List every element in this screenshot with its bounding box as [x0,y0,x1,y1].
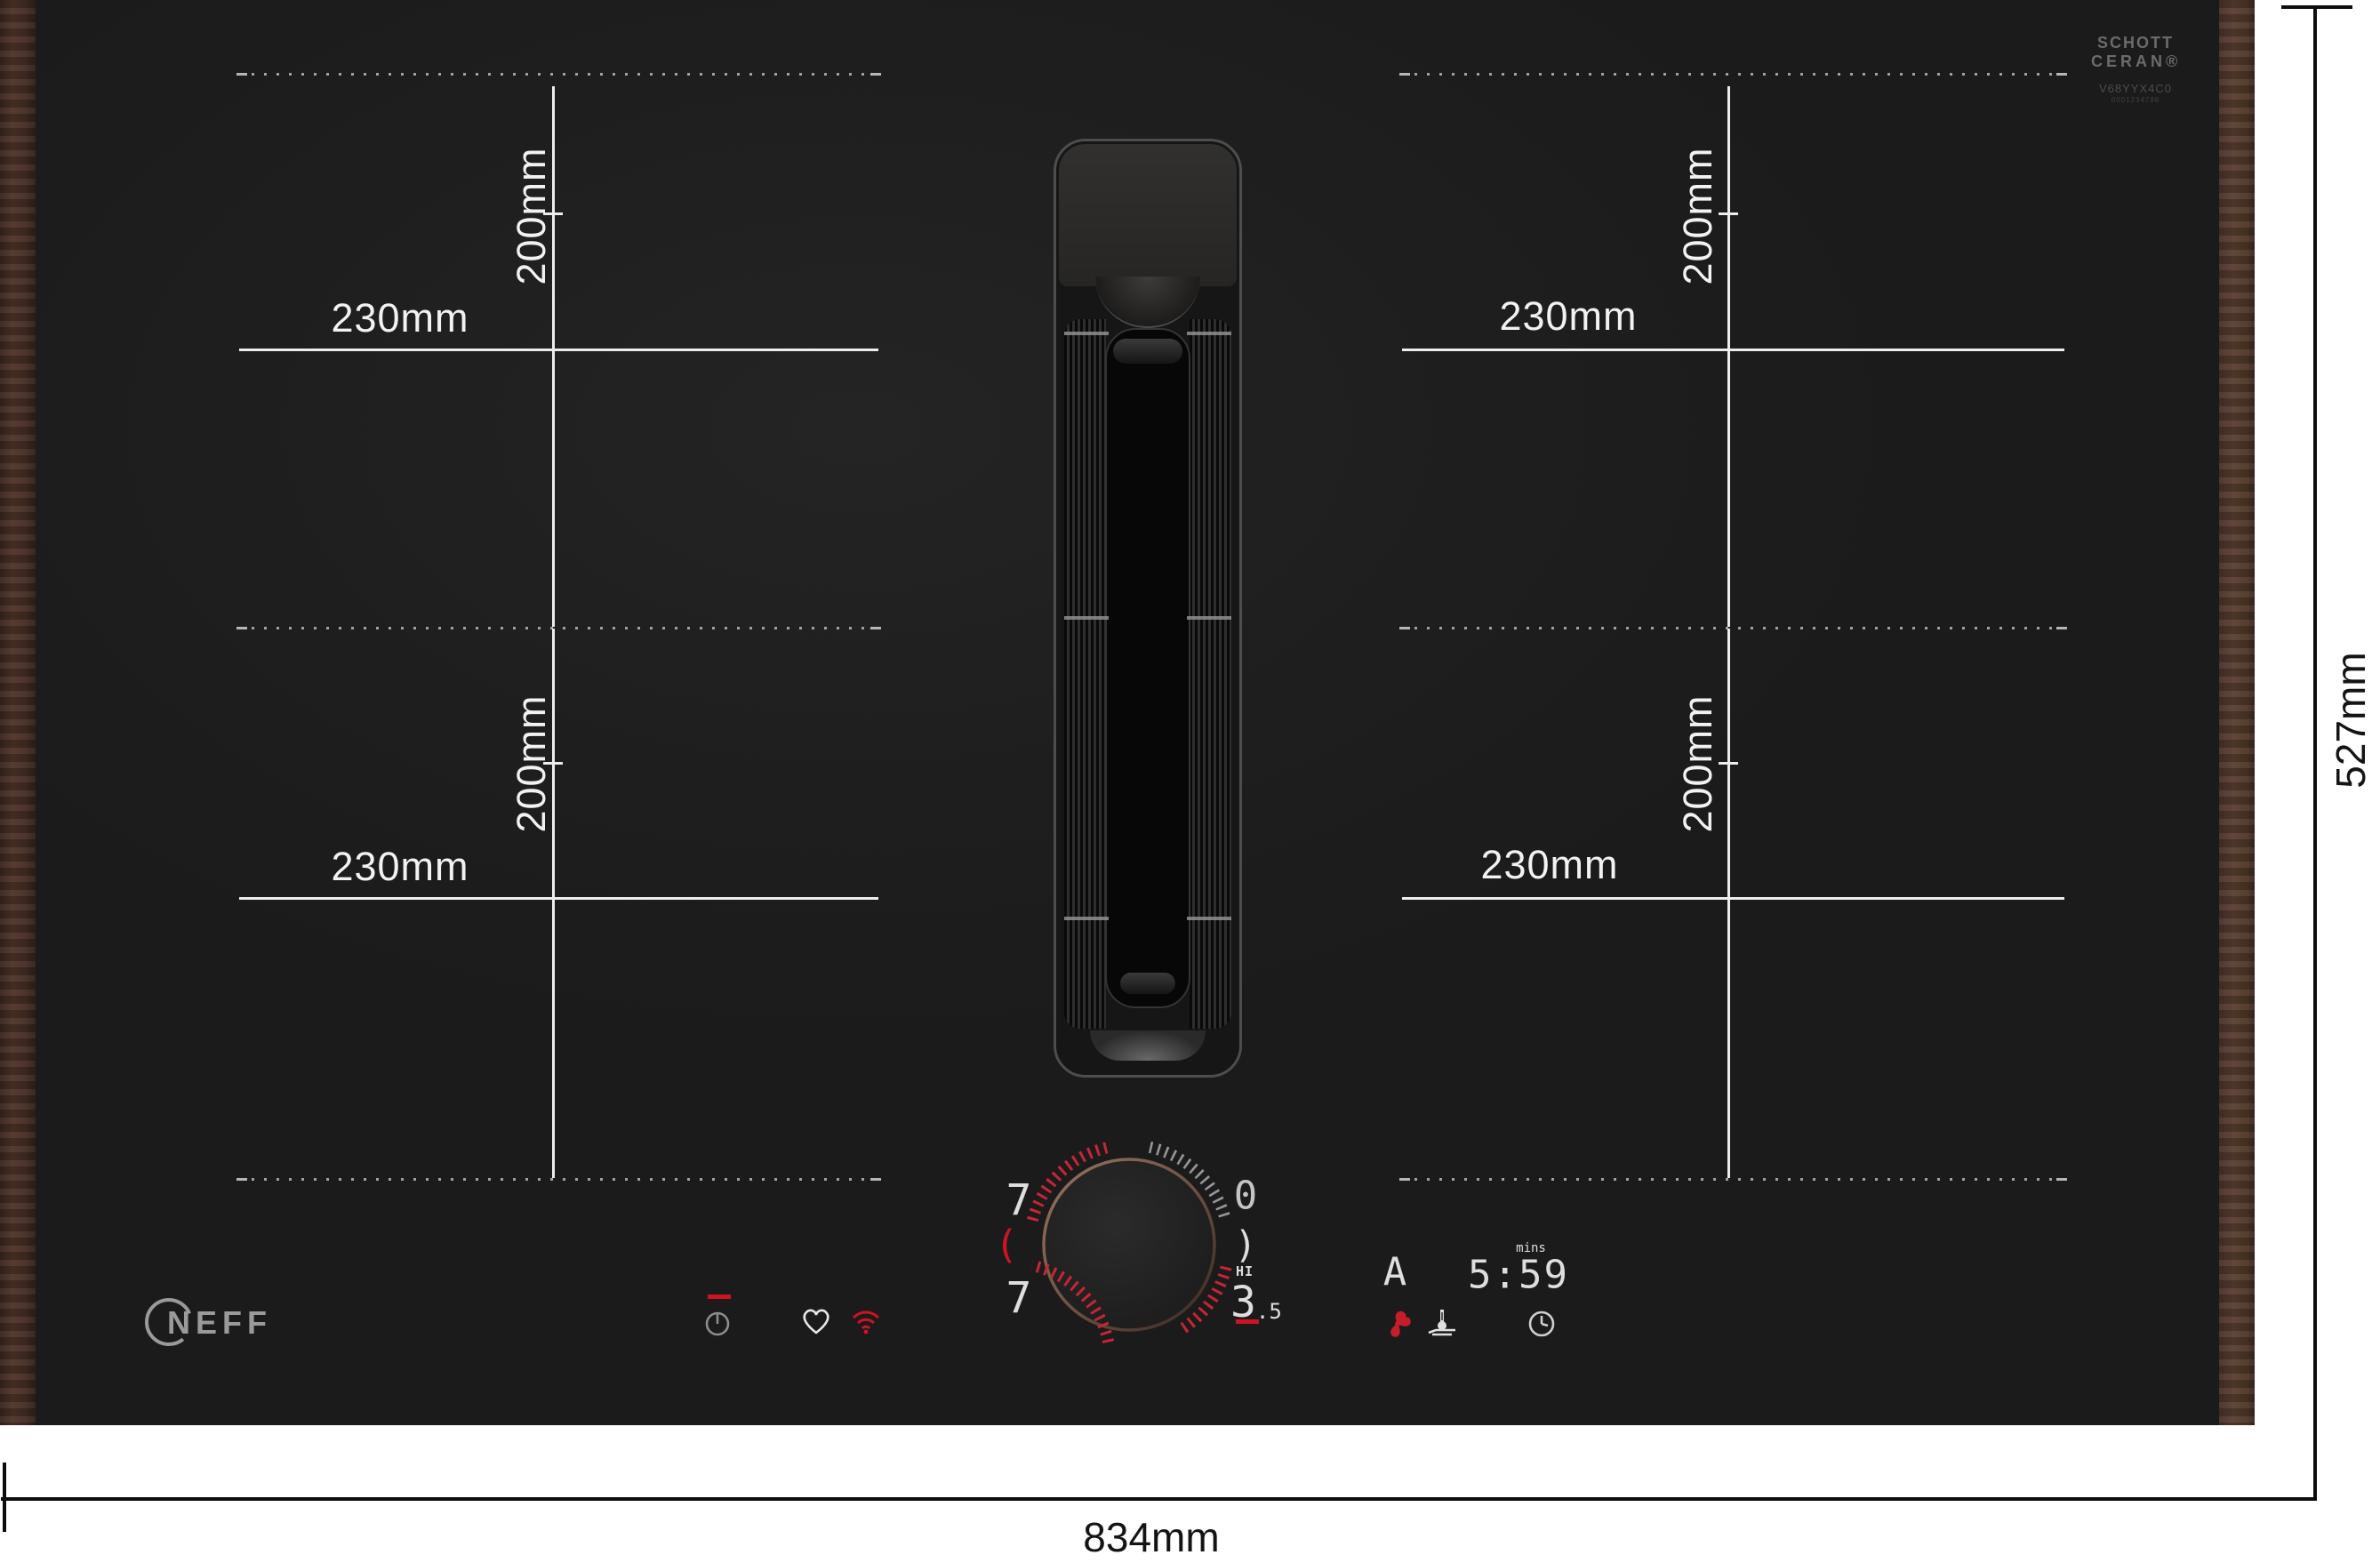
hob-surface: 230mm 230mm 230mm 230mm 200mm 200mm 200m… [0,0,2255,1425]
overall-width-label: 834mm [1083,1513,1219,1561]
zone-height-line-tick [1719,212,1738,215]
glass-brand-line2: CERAN® [2091,52,2180,71]
grille-divider [1187,616,1231,620]
zone-boundary-dotted [239,1178,878,1181]
knob-value-underline [1236,1319,1259,1324]
height-dimension-tick-top [2281,5,2352,9]
knob-dial[interactable] [1044,1159,1214,1330]
wood-trim-left [0,0,36,1425]
heart-icon[interactable] [799,1305,833,1337]
zone-width-label: 230mm [331,844,469,890]
grille-divider [1187,332,1231,335]
zone-width-label: 230mm [1499,293,1637,340]
neff-logo-text: NEFF [167,1304,272,1341]
extractor-grille-right [1190,319,1231,1029]
zone-boundary-dotted [1402,1178,2064,1181]
knob-bracket-right: ) [1234,1223,1256,1267]
neff-logo: NEFF [140,1294,309,1351]
grille-divider [1064,332,1109,335]
pan-thermometer-icon[interactable] [1424,1303,1460,1341]
zone-height-line-tick [1719,762,1738,765]
zone-boundary-dotted [1402,627,2064,629]
zone-height-label: 200mm [1675,694,1721,832]
overall-height-label: 527mm [2327,652,2375,788]
zone-width-line [239,897,878,900]
zone-width-label: 230mm [331,295,469,341]
wifi-icon[interactable] [849,1305,883,1337]
width-dimension-line [1,1497,2317,1501]
glass-brand-line1: SCHOTT [2091,34,2180,52]
knob-value-decimal: .5 [1256,1299,1282,1327]
width-dimension-tick-left [3,1463,6,1532]
height-dimension-line [2313,5,2317,1501]
glass-brand-block: SCHOTT CERAN® V68YYX4C0 0001234786 [2091,34,2180,105]
extractor-bottom-dome [1090,1030,1206,1061]
zone-width-line [239,349,878,351]
zone-boundary-dotted [239,73,878,76]
zone-height-line [1727,86,1730,627]
zone-boundary-dotted [1402,73,2064,76]
extractor-roller-bottom [1120,973,1175,994]
power-icon[interactable] [702,1309,733,1339]
extractor-grille-left [1064,319,1106,1029]
glass-serial-code: 0001234786 [2091,96,2180,104]
zone-height-label: 200mm [509,694,555,832]
zone-width-line [1402,349,2064,351]
extractor-handle[interactable] [1095,277,1200,328]
downdraft-extractor [1054,139,1242,1078]
zone-boundary-dotted [239,627,878,629]
knob-level-left-top: 7 [1006,1175,1032,1225]
control-knob[interactable] [1012,1127,1246,1362]
zone-height-label: 200mm [509,147,555,285]
knob-bracket-left: ( [995,1222,1019,1268]
glass-model-code: V68YYX4C0 [2091,83,2180,96]
clock-icon[interactable] [1527,1309,1557,1339]
knob-level-right-top: 0 [1234,1174,1258,1219]
zone-height-label: 200mm [1675,147,1721,285]
grille-divider [1064,917,1109,920]
wood-trim-right [2219,0,2255,1425]
product-dimension-diagram: 230mm 230mm 230mm 230mm 200mm 200mm 200m… [0,0,2380,1563]
auto-indicator: A [1383,1250,1407,1295]
timer-value: 5:59 [1468,1253,1569,1298]
extractor-roller-top [1113,339,1182,364]
grille-divider [1064,616,1109,620]
zone-width-label: 230mm [1480,842,1618,888]
fan-icon[interactable] [1381,1307,1414,1341]
extractor-cap [1059,144,1237,286]
power-active-indicator [708,1294,731,1299]
zone-height-line [1727,629,1730,1178]
grille-divider [1187,917,1231,920]
zone-width-line [1402,897,2064,900]
knob-level-left-bottom: 7 [1006,1273,1032,1323]
extractor-channel [1105,328,1190,1008]
